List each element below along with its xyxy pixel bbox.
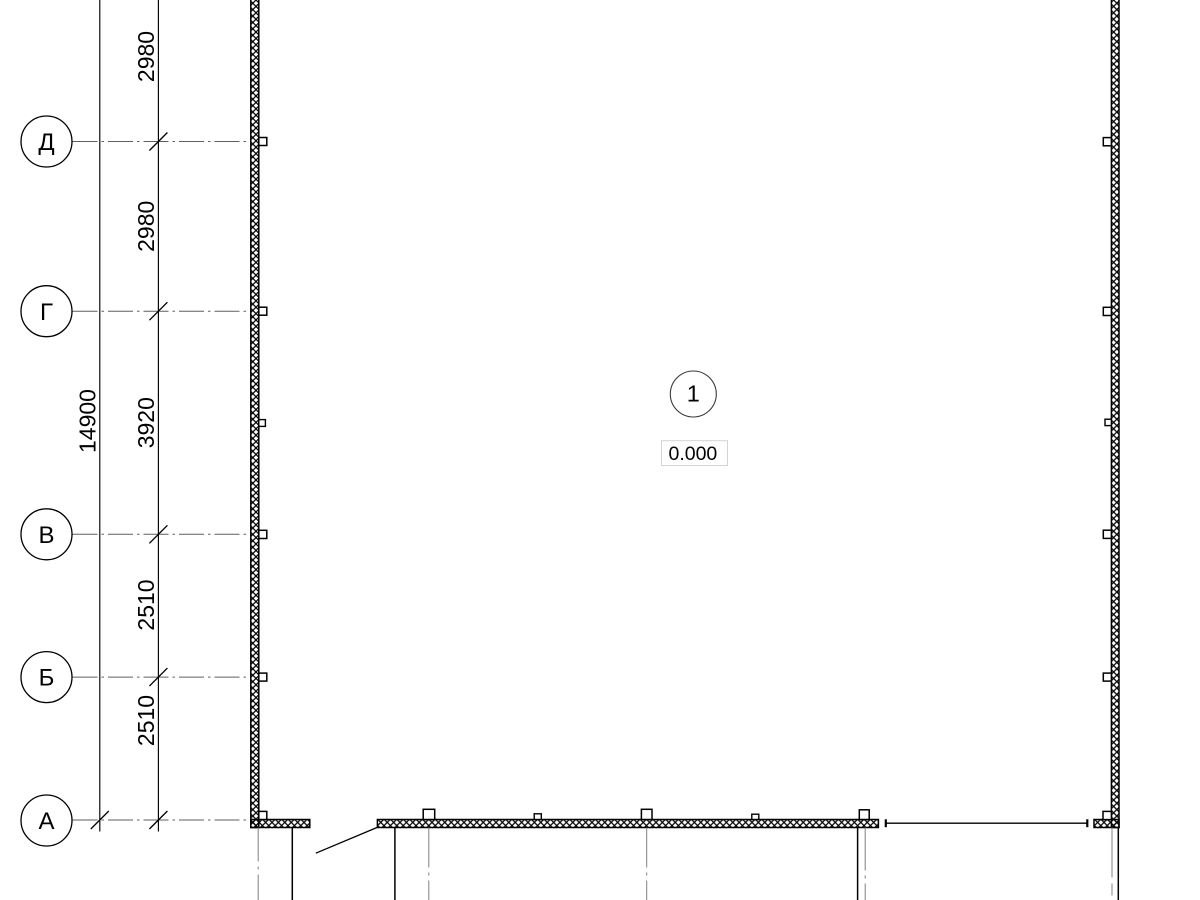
- svg-text:2980: 2980: [133, 31, 159, 82]
- svg-text:14900: 14900: [75, 389, 101, 453]
- svg-text:0.000: 0.000: [668, 443, 717, 465]
- svg-text:В: В: [38, 522, 54, 549]
- svg-text:2510: 2510: [133, 695, 159, 746]
- svg-text:Б: Б: [39, 665, 55, 692]
- svg-text:Д: Д: [38, 129, 54, 156]
- svg-text:2980: 2980: [133, 201, 159, 252]
- svg-text:3920: 3920: [133, 397, 159, 448]
- svg-text:1: 1: [687, 381, 700, 407]
- svg-text:2510: 2510: [133, 579, 159, 630]
- svg-text:А: А: [38, 808, 54, 835]
- svg-text:Г: Г: [40, 299, 53, 326]
